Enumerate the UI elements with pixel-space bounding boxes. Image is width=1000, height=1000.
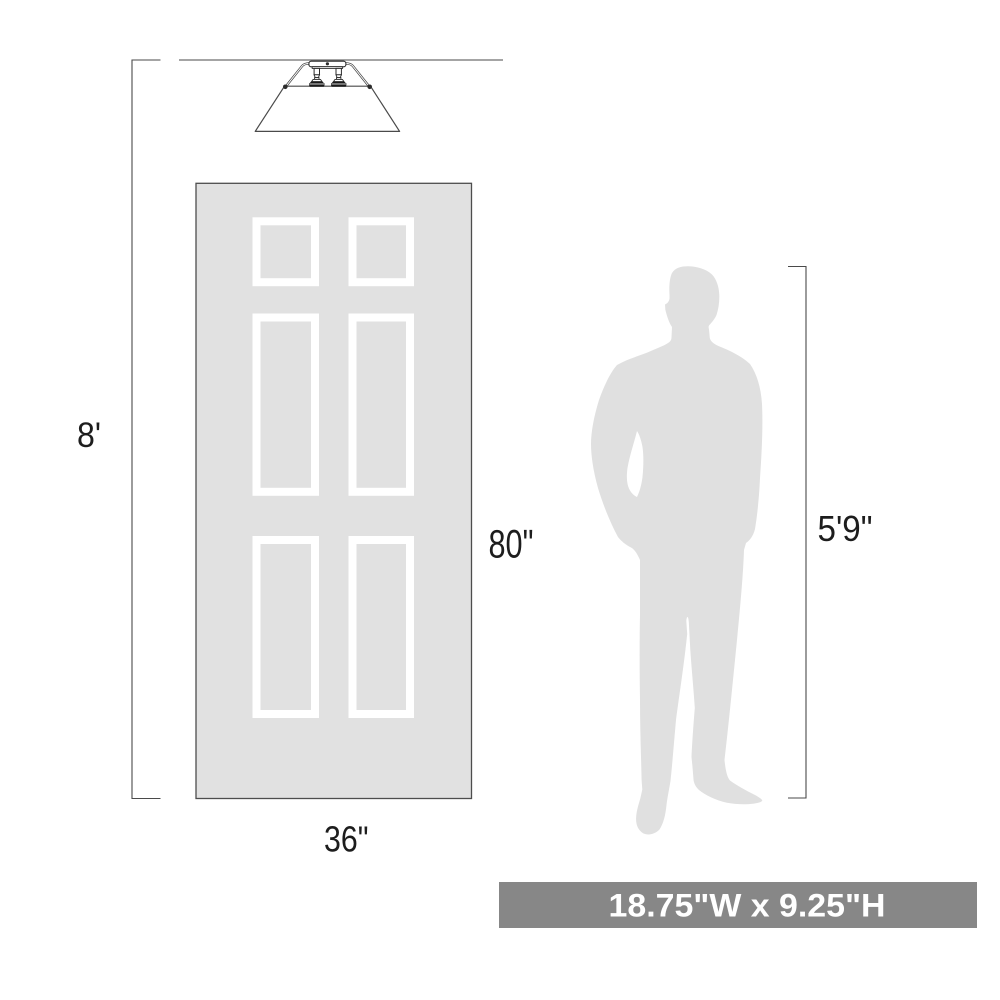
svg-text:18.75"W x 9.25"H: 18.75"W x 9.25"H xyxy=(609,888,886,924)
svg-text:80": 80" xyxy=(489,523,534,567)
svg-text:8': 8' xyxy=(77,416,101,455)
svg-text:36": 36" xyxy=(324,819,369,860)
svg-text:5'9": 5'9" xyxy=(818,508,873,549)
